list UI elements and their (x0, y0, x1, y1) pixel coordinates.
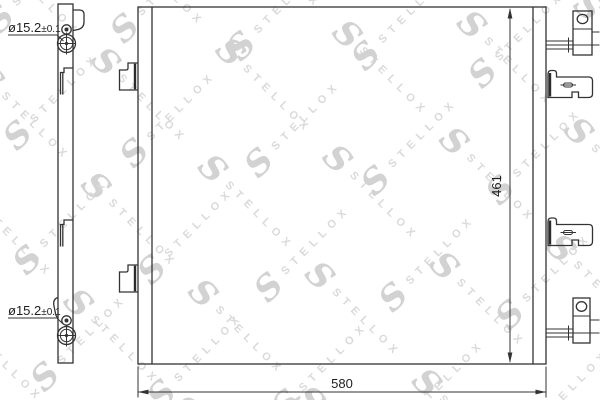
width-arrow-right (536, 390, 547, 395)
width-arrow-left (138, 390, 149, 395)
top-inlet-port-hole (577, 14, 588, 23)
bottom-outlet-port-hole (576, 302, 586, 312)
height-dimension-label: 461 (489, 175, 504, 197)
width-dimension-label: 580 (331, 376, 353, 391)
height-arrow-up (508, 8, 513, 19)
upper-right-bracket (548, 71, 593, 98)
height-arrow-down (508, 353, 513, 364)
port-top-leader (8, 35, 64, 41)
height-dimension: 461 (489, 8, 512, 363)
upper-mount-step (61, 68, 74, 95)
port-bottom-leader (8, 318, 63, 324)
technical-drawing-canvas: SSTELLOXSSTELLOXSSTELLOXSSTELLOXSSTELLOX… (0, 0, 600, 400)
lower-mount-step (61, 220, 74, 247)
bottom-outlet-block (573, 298, 600, 343)
width-dimension: 580 (138, 367, 546, 398)
port-top-label: ø15.2±0.1 (8, 20, 61, 35)
lower-left-mount-tab (120, 265, 139, 292)
bottom-port-small-circle (62, 316, 71, 325)
upper-left-mount-tab (120, 63, 139, 90)
front-view (120, 7, 547, 364)
top-inlet-block (573, 11, 600, 55)
top-port-hook (73, 10, 84, 31)
right-fittings (546, 11, 600, 343)
condenser-drawing: ø15.2±0.1 ø15.2±0.1 (0, 0, 600, 400)
condenser-body-outline (138, 7, 546, 364)
lower-right-bracket (548, 218, 593, 246)
port-bottom-label: ø15.2±0.1 (8, 303, 61, 318)
port-diameter-callouts: ø15.2±0.1 ø15.2±0.1 (8, 20, 64, 324)
